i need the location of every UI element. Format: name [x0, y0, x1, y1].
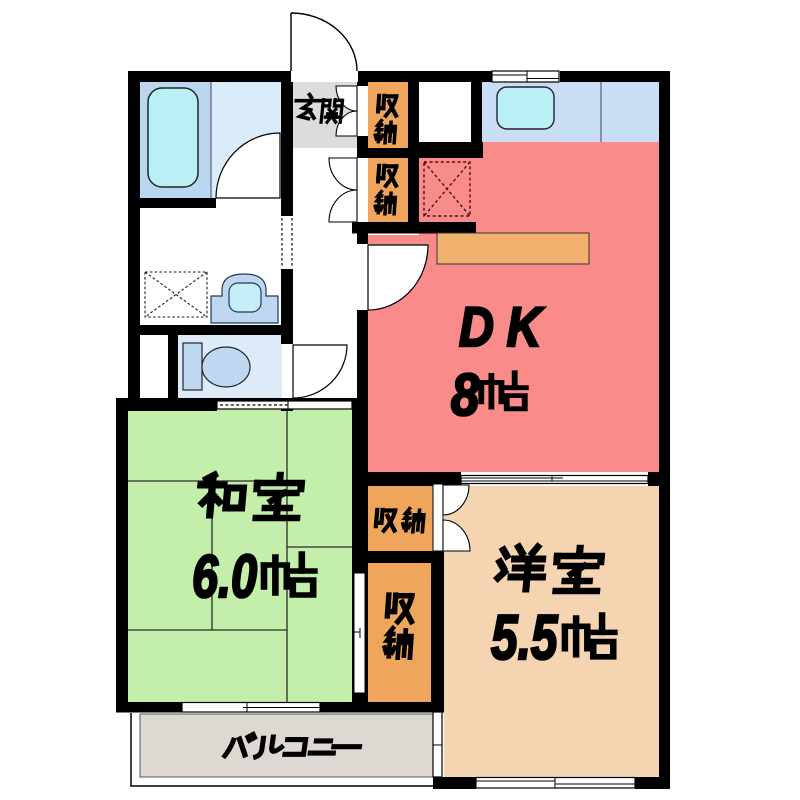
svg-text:DK: DK [459, 297, 554, 359]
svg-text:8: 8 [451, 361, 480, 427]
svg-text:6.0: 6.0 [192, 543, 257, 610]
svg-text:5.5: 5.5 [491, 602, 558, 673]
